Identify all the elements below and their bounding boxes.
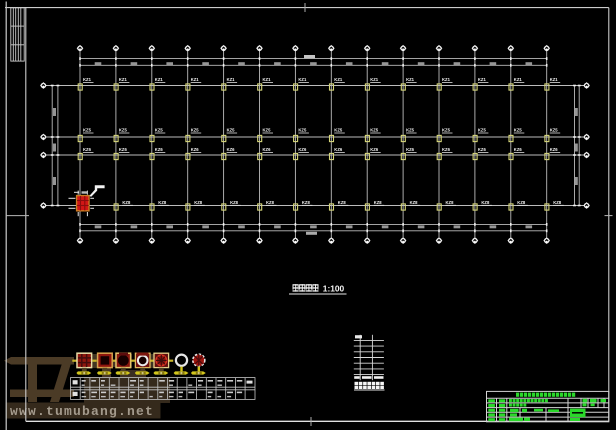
svg-text:KZ6: KZ6 bbox=[370, 147, 379, 152]
svg-text:1:100: 1:100 bbox=[323, 284, 345, 294]
svg-text:KZ5: KZ5 bbox=[83, 128, 92, 133]
svg-text:KZ1: KZ1 bbox=[298, 77, 307, 82]
svg-text:KZ8: KZ8 bbox=[302, 200, 311, 205]
svg-text:KZ1: KZ1 bbox=[478, 77, 487, 82]
svg-text:KZ6: KZ6 bbox=[191, 147, 200, 152]
svg-text:KZ6: KZ6 bbox=[119, 147, 128, 152]
svg-text:KZ5: KZ5 bbox=[370, 128, 379, 133]
svg-text:KZ1: KZ1 bbox=[191, 77, 200, 82]
svg-text:KZ8: KZ8 bbox=[122, 200, 131, 205]
svg-text:KZ1: KZ1 bbox=[406, 77, 415, 82]
svg-text:KZ8: KZ8 bbox=[158, 200, 167, 205]
svg-text:KZ6: KZ6 bbox=[298, 147, 307, 152]
svg-text:KZ5: KZ5 bbox=[478, 128, 487, 133]
svg-text:KZ8: KZ8 bbox=[374, 200, 383, 205]
svg-text:KZ5: KZ5 bbox=[227, 128, 236, 133]
svg-text:KZ6: KZ6 bbox=[406, 147, 415, 152]
svg-text:KZ1: KZ1 bbox=[370, 77, 379, 82]
svg-text:KZ5: KZ5 bbox=[263, 128, 272, 133]
svg-text:KZ8: KZ8 bbox=[194, 200, 203, 205]
svg-text:KZ5: KZ5 bbox=[406, 128, 415, 133]
svg-text:KZ8: KZ8 bbox=[446, 200, 455, 205]
svg-text:KZ1: KZ1 bbox=[442, 77, 451, 82]
svg-text:www.tumubang.net: www.tumubang.net bbox=[10, 404, 154, 419]
svg-text:KZ8: KZ8 bbox=[481, 200, 490, 205]
svg-text:KZ5: KZ5 bbox=[550, 128, 559, 133]
svg-text:KZ1: KZ1 bbox=[550, 77, 559, 82]
svg-text:KZ6: KZ6 bbox=[442, 147, 451, 152]
svg-text:KZ6: KZ6 bbox=[478, 147, 487, 152]
svg-text:KZ5: KZ5 bbox=[442, 128, 451, 133]
svg-text:KZ8: KZ8 bbox=[517, 200, 526, 205]
svg-text:KZ1: KZ1 bbox=[227, 77, 236, 82]
svg-text:KZ1: KZ1 bbox=[263, 77, 272, 82]
svg-text:KZ6: KZ6 bbox=[514, 147, 523, 152]
svg-text:KZ8: KZ8 bbox=[410, 200, 419, 205]
svg-text:KZ6: KZ6 bbox=[227, 147, 236, 152]
svg-text:KZ6: KZ6 bbox=[155, 147, 164, 152]
svg-text:KZ6: KZ6 bbox=[334, 147, 343, 152]
svg-text:KZ8: KZ8 bbox=[230, 200, 239, 205]
svg-text:KZ8: KZ8 bbox=[266, 200, 275, 205]
svg-text:KZ6: KZ6 bbox=[83, 147, 92, 152]
svg-text:KZ5: KZ5 bbox=[191, 128, 200, 133]
svg-text:KZ5: KZ5 bbox=[514, 128, 523, 133]
svg-text:KZ5: KZ5 bbox=[298, 128, 307, 133]
svg-text:KZ8: KZ8 bbox=[338, 200, 347, 205]
svg-text:KZ5: KZ5 bbox=[334, 128, 343, 133]
svg-text:KZ6: KZ6 bbox=[550, 147, 559, 152]
svg-text:KZ5: KZ5 bbox=[119, 128, 128, 133]
svg-text:KZ1: KZ1 bbox=[83, 77, 92, 82]
svg-text:KZ1: KZ1 bbox=[119, 77, 128, 82]
svg-text:KZ5: KZ5 bbox=[155, 128, 164, 133]
svg-text:KZ1: KZ1 bbox=[334, 77, 343, 82]
svg-text:KZ1: KZ1 bbox=[155, 77, 164, 82]
svg-text:KZ6: KZ6 bbox=[263, 147, 272, 152]
svg-text:KZ8: KZ8 bbox=[553, 200, 562, 205]
svg-text:KZ1: KZ1 bbox=[514, 77, 523, 82]
